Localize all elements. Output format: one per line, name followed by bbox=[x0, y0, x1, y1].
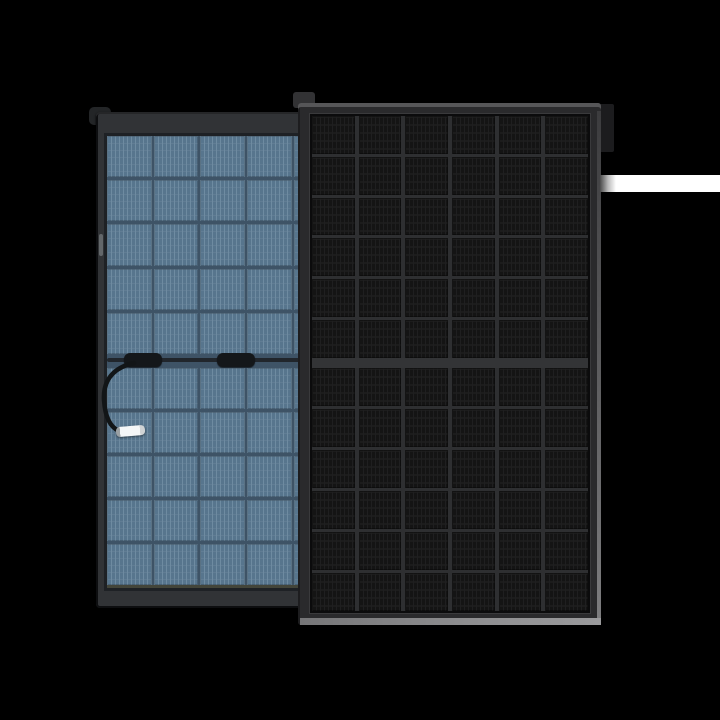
solar-cell bbox=[405, 157, 448, 195]
solar-cell bbox=[545, 238, 588, 276]
solar-cell bbox=[312, 409, 355, 447]
solar-cell bbox=[200, 456, 245, 497]
solar-cell bbox=[545, 157, 588, 195]
solar-cell bbox=[200, 136, 245, 177]
solar-cell bbox=[452, 238, 495, 276]
solar-cell bbox=[247, 180, 292, 221]
front-cell-field bbox=[312, 116, 588, 611]
solar-cell bbox=[405, 198, 448, 236]
solar-cell bbox=[545, 279, 588, 317]
solar-cell bbox=[312, 198, 355, 236]
solar-cell bbox=[499, 198, 542, 236]
solar-cell bbox=[499, 157, 542, 195]
solar-cell bbox=[499, 573, 542, 611]
solar-cell bbox=[359, 450, 402, 488]
solar-cell bbox=[499, 532, 542, 570]
solar-cell bbox=[200, 544, 245, 585]
solar-cell bbox=[452, 157, 495, 195]
solar-cell bbox=[247, 412, 292, 453]
solar-cell bbox=[452, 368, 495, 406]
solar-cell bbox=[499, 450, 542, 488]
solar-cell bbox=[359, 573, 402, 611]
solar-cell bbox=[200, 269, 245, 310]
product-photo-stage bbox=[0, 0, 720, 720]
reflection-band bbox=[600, 175, 720, 192]
solar-cell bbox=[247, 224, 292, 265]
solar-cell bbox=[499, 279, 542, 317]
solar-cell bbox=[545, 116, 588, 154]
solar-cell bbox=[107, 456, 152, 497]
solar-cell bbox=[405, 238, 448, 276]
solar-cell bbox=[452, 116, 495, 154]
front-black-panel bbox=[298, 103, 601, 625]
solar-cell bbox=[452, 409, 495, 447]
solar-cell bbox=[405, 320, 448, 358]
solar-cell bbox=[154, 456, 199, 497]
solar-cell bbox=[452, 320, 495, 358]
solar-cell bbox=[154, 412, 199, 453]
solar-cell bbox=[359, 198, 402, 236]
solar-cell bbox=[247, 456, 292, 497]
solar-cell bbox=[247, 544, 292, 585]
solar-cell bbox=[200, 412, 245, 453]
front-center-gap bbox=[312, 358, 588, 368]
front-cell-grid-top bbox=[312, 116, 588, 358]
rear-frame-notch bbox=[99, 234, 103, 256]
solar-cell bbox=[452, 450, 495, 488]
solar-cell bbox=[359, 279, 402, 317]
solar-cell bbox=[107, 180, 152, 221]
solar-cell bbox=[312, 450, 355, 488]
solar-cell bbox=[499, 320, 542, 358]
solar-cell bbox=[545, 198, 588, 236]
solar-cell bbox=[405, 409, 448, 447]
solar-cell bbox=[452, 491, 495, 529]
solar-cell bbox=[359, 238, 402, 276]
solar-cell bbox=[154, 269, 199, 310]
solar-cell bbox=[200, 180, 245, 221]
solar-cell bbox=[312, 368, 355, 406]
solar-cell bbox=[107, 500, 152, 541]
solar-cell bbox=[452, 198, 495, 236]
solar-cell bbox=[247, 500, 292, 541]
solar-cell bbox=[247, 313, 292, 354]
solar-cell bbox=[200, 500, 245, 541]
solar-cell bbox=[499, 116, 542, 154]
solar-cell bbox=[499, 238, 542, 276]
solar-cell bbox=[359, 491, 402, 529]
solar-cell bbox=[359, 157, 402, 195]
solar-cell bbox=[200, 368, 245, 409]
solar-cell bbox=[499, 409, 542, 447]
solar-cell bbox=[154, 136, 199, 177]
solar-cell bbox=[545, 532, 588, 570]
junction-box bbox=[124, 353, 162, 367]
solar-cell bbox=[154, 368, 199, 409]
solar-cell bbox=[452, 573, 495, 611]
solar-cell bbox=[545, 409, 588, 447]
solar-cell bbox=[154, 180, 199, 221]
solar-cell bbox=[405, 573, 448, 611]
solar-cell bbox=[107, 368, 152, 409]
front-cell-grid-bottom bbox=[312, 368, 588, 611]
solar-cell bbox=[107, 544, 152, 585]
solar-cell bbox=[200, 224, 245, 265]
solar-cell bbox=[359, 116, 402, 154]
solar-cell bbox=[107, 136, 152, 177]
solar-cell bbox=[312, 279, 355, 317]
solar-cell bbox=[312, 116, 355, 154]
solar-cell bbox=[405, 279, 448, 317]
solar-cell bbox=[359, 368, 402, 406]
solar-cell bbox=[499, 491, 542, 529]
solar-cell bbox=[405, 532, 448, 570]
solar-cell bbox=[107, 224, 152, 265]
solar-cell bbox=[247, 136, 292, 177]
solar-cell bbox=[359, 532, 402, 570]
solar-cell bbox=[154, 313, 199, 354]
solar-cell bbox=[154, 544, 199, 585]
solar-cell bbox=[107, 313, 152, 354]
solar-cell bbox=[545, 491, 588, 529]
solar-cell bbox=[405, 116, 448, 154]
solar-cell bbox=[154, 224, 199, 265]
solar-cell bbox=[545, 450, 588, 488]
solar-cell bbox=[107, 269, 152, 310]
junction-box bbox=[217, 353, 255, 367]
solar-cell bbox=[312, 320, 355, 358]
front-frame-bottom-edge bbox=[300, 618, 601, 625]
solar-cell bbox=[499, 368, 542, 406]
solar-cell bbox=[359, 320, 402, 358]
solar-cell bbox=[312, 491, 355, 529]
solar-cell bbox=[545, 573, 588, 611]
solar-cell bbox=[545, 368, 588, 406]
solar-cell bbox=[312, 573, 355, 611]
solar-cell bbox=[247, 368, 292, 409]
solar-cell bbox=[200, 313, 245, 354]
solar-cell bbox=[452, 532, 495, 570]
solar-cell bbox=[312, 532, 355, 570]
solar-cell bbox=[312, 157, 355, 195]
solar-cell bbox=[312, 238, 355, 276]
solar-cell bbox=[247, 269, 292, 310]
solar-cell bbox=[405, 368, 448, 406]
solar-cell bbox=[359, 409, 402, 447]
solar-cell bbox=[452, 279, 495, 317]
solar-cell bbox=[154, 500, 199, 541]
solar-cell bbox=[405, 450, 448, 488]
solar-cell bbox=[405, 491, 448, 529]
solar-cell bbox=[545, 320, 588, 358]
